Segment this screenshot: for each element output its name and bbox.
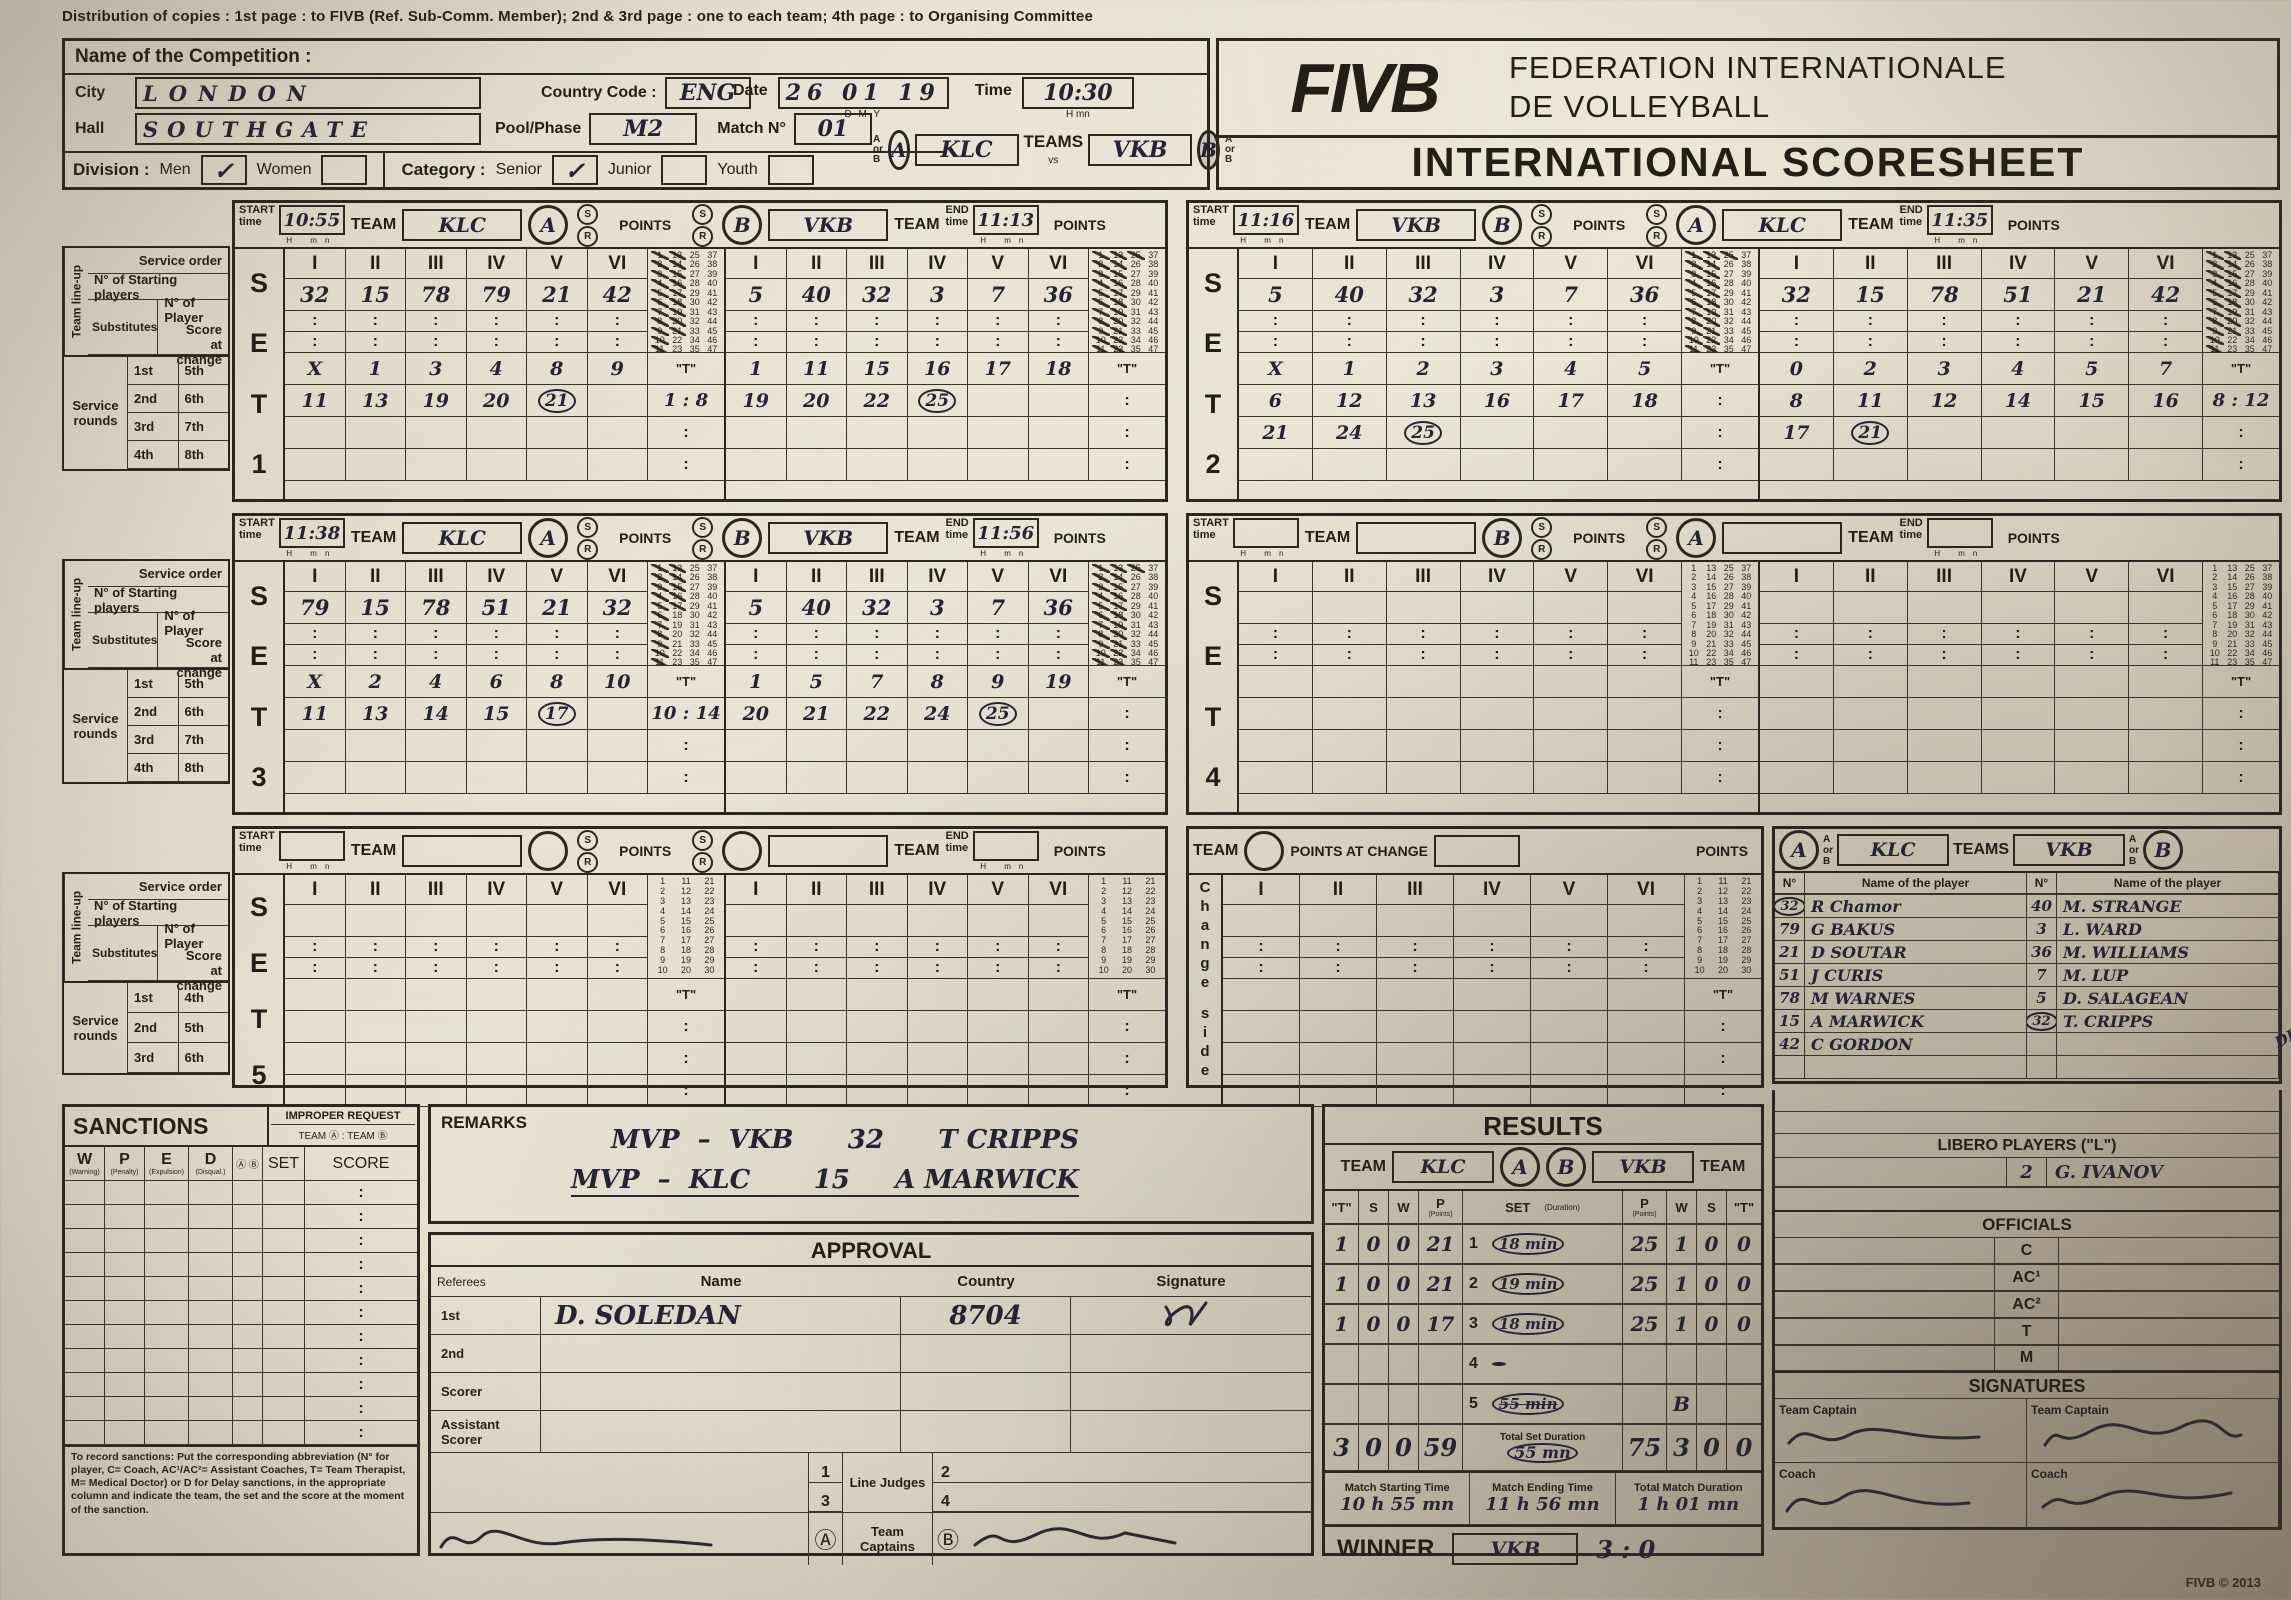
handwritten-score: 11:13 xyxy=(977,210,1034,231)
substitutes-block: SubstitutesN° of PlayerScoreat change xyxy=(88,613,228,668)
service-round-cell xyxy=(1029,449,1090,481)
starting-player-number xyxy=(2055,592,2129,624)
player-name: G BAKUS xyxy=(1805,918,2027,941)
service-round-cell xyxy=(346,417,407,449)
service-round-cell: 25 xyxy=(1387,417,1461,449)
label-spacer xyxy=(62,513,230,559)
time-label: STARTtime xyxy=(239,205,275,228)
service-round-cell xyxy=(1461,666,1535,698)
service-round-cell xyxy=(1608,1011,1685,1043)
starting-player-number: 5 xyxy=(726,592,787,624)
service-round-cell: 25 xyxy=(908,385,969,417)
change-side-body: ChangesideIIIIIIIVVVI1234567891011121314… xyxy=(1189,875,1761,1107)
service-round-cell xyxy=(1313,666,1387,698)
starting-player-number: 36 xyxy=(1029,279,1090,311)
service-order-numeral: V xyxy=(968,249,1029,279)
official-role-label: T xyxy=(1995,1319,2059,1345)
player-number: 36 xyxy=(2027,941,2057,964)
official-row: AC¹ xyxy=(1775,1265,2279,1292)
service-round-cell xyxy=(1313,698,1387,730)
official-row: C xyxy=(1775,1238,2279,1265)
handwritten-score: 21 xyxy=(2077,282,2106,307)
service-order-numeral: V xyxy=(527,249,588,279)
line-judges-row: 13Line Judges24 xyxy=(431,1453,1311,1513)
substitutes-block: SubstitutesN° of PlayerScoreat change xyxy=(88,300,228,355)
time-value-box: 11:13 xyxy=(973,205,1039,235)
service-order-numeral: III xyxy=(847,562,908,592)
handwritten-score: 15 xyxy=(361,282,390,307)
handwritten-score: 59 xyxy=(1424,1433,1457,1462)
starting-player-number xyxy=(787,905,848,937)
service-round-cell xyxy=(346,1011,407,1043)
substitution-cell: : xyxy=(2129,645,2203,666)
service-round-cell xyxy=(588,385,649,417)
handwritten-score: 1 xyxy=(369,358,382,380)
handwritten-score: 11 xyxy=(302,703,328,725)
sanction-cell xyxy=(105,1229,145,1253)
handwritten-score: 21 xyxy=(1262,422,1288,444)
service-round-cell xyxy=(2055,698,2129,730)
change-side-letter: s xyxy=(1201,1005,1209,1022)
service-round-cell xyxy=(285,979,346,1011)
substitution-cell: : xyxy=(406,311,467,332)
substitution-cell: : xyxy=(847,311,908,332)
service-round-cell xyxy=(527,730,588,762)
service-round-cell xyxy=(787,1075,848,1107)
sanction-cell xyxy=(65,1253,105,1277)
substitutes-label: Substitutes xyxy=(88,613,158,667)
distribution-note: Distribution of copies : 1st page : to F… xyxy=(62,8,1762,25)
substitution-cell: : xyxy=(1834,624,1908,645)
substitution-cell: : xyxy=(1313,332,1387,353)
handwritten-score: 11 xyxy=(803,358,829,380)
service-round-cell: 19 xyxy=(726,385,787,417)
handwritten-score: 32 xyxy=(1782,282,1811,307)
captain-a-sig-label: Team Captain xyxy=(1779,1403,1857,1417)
service-round-cell xyxy=(1239,762,1313,794)
approval-row: 1stD. SOLEDAN8704 xyxy=(431,1297,1311,1335)
signature-scribble xyxy=(431,1521,731,1557)
start-time: STARTtimeH mn xyxy=(1193,518,1299,558)
player-number xyxy=(2027,1033,2057,1056)
set-number-column: SET4 xyxy=(1189,562,1239,812)
handwritten-score: 0 xyxy=(1365,1433,1382,1462)
handwritten-score: 8 xyxy=(931,671,944,693)
service-round-cell xyxy=(588,762,649,794)
service-order-numeral: IV xyxy=(467,562,528,592)
service-round-cell xyxy=(787,1011,848,1043)
service-order-numeral: II xyxy=(1834,562,1908,592)
service-order-numeral: V xyxy=(1534,249,1608,279)
service-round-cell: 13 xyxy=(346,385,407,417)
service-round-cell xyxy=(467,417,528,449)
sanction-cell xyxy=(145,1397,189,1421)
team-label: TEAM xyxy=(894,842,939,860)
service-round-cell xyxy=(1760,762,1834,794)
sanction-cell xyxy=(105,1301,145,1325)
round-ordinal: 8th xyxy=(179,754,229,781)
team-name-right xyxy=(1722,522,1842,554)
starting-player-number xyxy=(1387,592,1461,624)
service-rounds-vertical-label: Servicerounds xyxy=(64,670,128,782)
substitution-cell: : xyxy=(787,624,848,645)
starting-player-number xyxy=(1461,592,1535,624)
handwritten-score: B xyxy=(1673,1392,1690,1416)
serve-icon: S xyxy=(692,830,713,851)
service-round-cell: 1 xyxy=(346,353,407,385)
service-order-numeral: VI xyxy=(588,562,649,592)
service-round-cell xyxy=(968,1011,1029,1043)
timeout-cell: "T" xyxy=(1685,979,1761,1011)
handwritten-score: 15 xyxy=(1779,1012,1800,1030)
substitution-cell: : xyxy=(1223,958,1300,979)
service-round-cell xyxy=(1313,730,1387,762)
name-col: Name of the player xyxy=(1805,873,2027,894)
team-label: TEAM xyxy=(351,529,396,547)
player-name: J CURIS xyxy=(1805,964,2027,987)
handwritten-score: 5 xyxy=(810,671,823,693)
substitution-cell: : xyxy=(1377,937,1454,958)
serve-icon: S xyxy=(1646,204,1667,225)
player-name: D SOUTAR xyxy=(1805,941,2027,964)
handwritten-score: 40 xyxy=(1335,282,1364,307)
receive-icon: R xyxy=(1646,226,1667,247)
handwritten-score: 19 xyxy=(1045,671,1071,693)
timeout-cell: 1 : 8 xyxy=(648,385,724,417)
handwritten-score: 0 xyxy=(1395,1433,1412,1462)
substitution-cell: : xyxy=(787,958,848,979)
serve-receive-indicator: SR xyxy=(577,830,598,873)
timeout-cell: : xyxy=(1682,730,1758,762)
service-round-pair: 1st5th xyxy=(128,670,228,698)
time-value-box: 11:56 xyxy=(973,518,1039,548)
sanction-cell: : xyxy=(305,1325,417,1349)
points-number: 35 xyxy=(1127,658,1145,666)
handwritten-score: VKB xyxy=(2045,839,2092,861)
handwritten-score: 0 xyxy=(1705,1312,1719,1336)
substitution-cell: : xyxy=(908,311,969,332)
team-letter-circle: A xyxy=(528,518,568,558)
substitution-cell: : xyxy=(346,332,407,353)
sanction-cell: : xyxy=(305,1205,417,1229)
substitution-cell: : xyxy=(1461,311,1535,332)
sanction-cell xyxy=(145,1349,189,1373)
starting-player-number: 36 xyxy=(1029,592,1090,624)
service-round-pair: 4th8th xyxy=(128,441,228,469)
time-value-box xyxy=(973,831,1039,861)
remarks-line-1: MVP – VKB 32 T CRIPPS xyxy=(611,1125,1301,1155)
points-number: 30 xyxy=(1735,966,1758,976)
service-round-cell xyxy=(1908,449,1982,481)
signature-col: Signature xyxy=(1071,1267,1311,1296)
service-order-numeral: III xyxy=(406,249,467,279)
handwritten-score: 1 : 8 xyxy=(664,390,708,411)
handwritten-score: J CURIS xyxy=(1811,966,1883,985)
service-round-cell: 17 xyxy=(968,353,1029,385)
substitution-cell: : xyxy=(908,624,969,645)
handwritten-score: 3 xyxy=(2036,920,2046,938)
substitution-cell: : xyxy=(467,937,528,958)
start-time: STARTtime11:16H mn xyxy=(1193,205,1299,245)
sanction-cell xyxy=(65,1373,105,1397)
handwritten-score: 1 xyxy=(1335,1272,1349,1296)
set-number: 5 xyxy=(251,1060,266,1091)
service-round-cell xyxy=(588,1043,649,1075)
service-round-cell xyxy=(968,449,1029,481)
service-round-cell xyxy=(2055,730,2129,762)
player-number: 21 xyxy=(1775,941,1805,964)
sanction-cell xyxy=(189,1205,233,1229)
sanction-score-header: SCORE xyxy=(305,1147,417,1181)
service-round-cell: 24 xyxy=(1313,417,1387,449)
set-side: IIIIIIIVVVI12345678910111213141516171819… xyxy=(1239,562,1760,812)
substitution-cell: : xyxy=(787,645,848,666)
round-ordinal: 8th xyxy=(179,441,229,468)
service-round-cell xyxy=(908,417,969,449)
result-cell xyxy=(1623,1345,1667,1384)
service-round-cell xyxy=(1461,417,1535,449)
sanction-cell xyxy=(189,1301,233,1325)
substitution-cell: : xyxy=(908,332,969,353)
service-round-cell xyxy=(1760,449,1834,481)
results-set-row: 10021118 min25100 xyxy=(1325,1225,1761,1265)
receive-icon: R xyxy=(1531,539,1552,560)
service-round-cell xyxy=(1534,666,1608,698)
service-round-cell xyxy=(1760,730,1834,762)
handwritten-score: A MARWICK xyxy=(1811,1012,1924,1031)
substitution-cell: : xyxy=(527,311,588,332)
player-number: 5 xyxy=(2027,987,2057,1010)
official-name-blank xyxy=(2059,1319,2279,1345)
time-units: H mn xyxy=(973,549,1039,558)
service-round-cell xyxy=(1982,666,2056,698)
captain-a-sig: Team Captain xyxy=(1775,1399,2027,1463)
time-value-box xyxy=(1233,518,1299,548)
starting-player-number: 32 xyxy=(1760,279,1834,311)
city-label: City xyxy=(65,84,127,102)
serve-receive-indicator: SR xyxy=(692,204,713,247)
sanction-cell xyxy=(145,1205,189,1229)
substitution-cell: : xyxy=(787,937,848,958)
substitution-cell: : xyxy=(2129,624,2203,645)
handwritten-score: 17 xyxy=(1427,1312,1455,1336)
service-order-label: Service order xyxy=(88,874,228,900)
team-lineup-vertical-label: Team line-up xyxy=(64,874,88,981)
handwritten-score: VKB xyxy=(803,213,853,237)
sanctions-title: SANCTIONS xyxy=(65,1107,267,1145)
service-round-cell xyxy=(285,1011,346,1043)
result-cell xyxy=(1697,1345,1727,1384)
result-cell xyxy=(1667,1345,1697,1384)
handwritten-score: 12 xyxy=(1931,390,1957,412)
points-number: 35 xyxy=(686,345,704,353)
referee-signature xyxy=(1071,1373,1311,1410)
substitution-cell: : xyxy=(1387,332,1461,353)
starting-player-number: 21 xyxy=(527,592,588,624)
round-ordinal: 6th xyxy=(179,698,229,725)
starting-player-number: 51 xyxy=(1982,279,2056,311)
round-ordinal: 5th xyxy=(179,357,229,384)
service-round-cell xyxy=(1531,1011,1608,1043)
team-letter-circle: B xyxy=(1482,205,1522,245)
handwritten-score: 8704 xyxy=(949,1301,1021,1331)
service-round-cell xyxy=(1834,666,1908,698)
substitution-cell: : xyxy=(787,332,848,353)
service-round-cell: 9 xyxy=(588,353,649,385)
sanction-cell xyxy=(105,1325,145,1349)
blank-roster-line xyxy=(1772,1112,2282,1134)
result-cell: B xyxy=(1667,1385,1697,1424)
service-round-cell: 21 xyxy=(1834,417,1908,449)
substitution-cell: : xyxy=(467,332,528,353)
receive-icon: R xyxy=(692,226,713,247)
handwritten-score: 78 xyxy=(421,595,450,620)
handwritten-score: 32 xyxy=(603,595,632,620)
handwritten-score: X xyxy=(307,358,322,380)
timeout-cell: : xyxy=(2203,417,2279,449)
team-label: TEAM xyxy=(351,216,396,234)
round-ordinal: 7th xyxy=(179,726,229,753)
starting-player-number: 78 xyxy=(1908,279,1982,311)
country-code-label: Country Code : xyxy=(541,84,657,102)
handwritten-score: L. WARD xyxy=(2063,920,2142,939)
official-blank xyxy=(1775,1346,1995,1371)
starting-player-number: 3 xyxy=(908,279,969,311)
starting-player-number: 78 xyxy=(406,592,467,624)
service-round-cell xyxy=(1608,449,1682,481)
roster-col-headers: N°Name of the playerN°Name of the player xyxy=(1775,873,2279,895)
team-a-field: KLC xyxy=(915,134,1019,166)
approval-row: 2nd xyxy=(431,1335,1311,1373)
service-order-numeral: III xyxy=(1908,562,1982,592)
points-number: 35 xyxy=(1720,658,1738,666)
service-round-cell xyxy=(1387,698,1461,730)
results-set-row: 10017318 min25100 xyxy=(1325,1305,1761,1345)
signatures-title: SIGNATURES xyxy=(1775,1373,2279,1399)
substitution-cell: : xyxy=(285,624,346,645)
service-round-cell: 1 xyxy=(726,353,787,385)
sanction-cell xyxy=(145,1277,189,1301)
set-header: STARTtime11:16H mnTEAMVKBBSRPOINTSSRAKLC… xyxy=(1189,203,2279,249)
change-side-letter: g xyxy=(1200,955,1209,972)
service-order-numeral: V xyxy=(1534,562,1608,592)
serve-icon: S xyxy=(1531,517,1552,538)
service-round-cell xyxy=(1300,979,1377,1011)
handwritten-score: 51 xyxy=(482,595,511,620)
handwritten-score: 17 xyxy=(985,358,1011,380)
handwritten-score: 13 xyxy=(362,703,388,725)
signature-scribble xyxy=(1779,1417,1999,1457)
points-number: 23 xyxy=(669,658,687,666)
substitution-cell: : xyxy=(588,645,649,666)
service-round-cell xyxy=(527,449,588,481)
service-round-pair: 1st5th xyxy=(128,357,228,385)
sanction-cell xyxy=(233,1181,263,1205)
name-col: Name of the player xyxy=(2057,873,2279,894)
serve-receive-indicator: SR xyxy=(1646,517,1667,560)
result-cell xyxy=(1359,1345,1389,1384)
substitution-cell: : xyxy=(726,645,787,666)
handwritten-score-circled: 17 xyxy=(538,702,576,726)
handwritten-score: 0 xyxy=(1367,1312,1381,1336)
service-round-cell xyxy=(1029,1075,1090,1107)
results-set-row: 10021219 min25100 xyxy=(1325,1265,1761,1305)
substitutes-label: Substitutes xyxy=(88,300,158,354)
starting-player-number: 32 xyxy=(1387,279,1461,311)
handwritten-score: 7 xyxy=(990,282,1005,307)
substitution-cell: : xyxy=(1982,645,2056,666)
handwritten-score: R Chamor xyxy=(1811,897,1901,916)
substitution-cell: : xyxy=(1223,937,1300,958)
player-name: D. SALAGEAN xyxy=(2057,987,2279,1010)
service-round-cell xyxy=(1029,417,1090,449)
points-column: 1234567891011121314151617181920212223242… xyxy=(648,562,724,665)
substitution-cell: : xyxy=(467,311,528,332)
handwritten-score-circled: 19 min xyxy=(1492,1273,1565,1295)
substitution-cell: : xyxy=(847,937,908,958)
sanction-cell xyxy=(145,1301,189,1325)
service-order-numeral: I xyxy=(726,875,787,905)
handwritten-score: 36 xyxy=(1630,282,1659,307)
city-field: LONDON xyxy=(135,77,481,109)
service-round-cell: 12 xyxy=(1908,385,1982,417)
teams-label: TEAMS xyxy=(1953,841,2009,859)
round-ordinal: 4th xyxy=(128,441,179,468)
starting-player-number: 79 xyxy=(285,592,346,624)
service-round-cell xyxy=(847,1043,908,1075)
handwritten-score: 11 h 56 mn xyxy=(1485,1494,1599,1515)
roster-header: AAorBKLCTEAMSVKBAorBB xyxy=(1775,829,2279,873)
player-number: 79 xyxy=(1775,918,1805,941)
handwritten-score-circled xyxy=(1492,1362,1506,1366)
coach-a-sig: Coach xyxy=(1775,1463,2027,1527)
set-word-letter: E xyxy=(250,328,268,359)
handwritten-score: 8 xyxy=(1790,390,1803,412)
timeout-cell: : xyxy=(1682,449,1758,481)
service-round-cell xyxy=(908,730,969,762)
timeout-cell: : xyxy=(1089,449,1165,481)
officials-title: OFFICIALS xyxy=(1775,1212,2279,1238)
handwritten-score: 16 xyxy=(924,358,950,380)
starting-player-number: 79 xyxy=(467,279,528,311)
service-rounds-vertical-label: Servicerounds xyxy=(64,983,128,1073)
service-round-cell: 16 xyxy=(908,353,969,385)
substitution-cell: : xyxy=(1760,332,1834,353)
handwritten-score: 19 xyxy=(743,390,769,412)
set-body: SET2IIIIIIIVVVI1234567891011121314151617… xyxy=(1189,249,2279,499)
service-round-cell: 22 xyxy=(847,385,908,417)
handwritten-score: 36 xyxy=(2031,943,2052,961)
points-header-right: POINTS xyxy=(1045,217,1115,233)
handwritten-score: 4 xyxy=(2011,358,2024,380)
service-round-cell: 17 xyxy=(1534,385,1608,417)
fivb-header: FIVB FEDERATION INTERNATIONALE DE VOLLEY… xyxy=(1216,38,2280,190)
handwritten-score: 15 xyxy=(1856,282,1885,307)
result-cell xyxy=(1325,1345,1359,1384)
starting-player-number: 40 xyxy=(787,592,848,624)
round-ordinal: 4th xyxy=(128,754,179,781)
substitution-cell: : xyxy=(1387,645,1461,666)
handwritten-score: 0 xyxy=(1397,1312,1411,1336)
team-label: TEAM xyxy=(1848,216,1893,234)
sanction-cell xyxy=(233,1349,263,1373)
substitution-cell: : xyxy=(908,958,969,979)
sanction-cell xyxy=(263,1253,305,1277)
handwritten-score: 0 xyxy=(1736,1433,1753,1462)
starting-player-number: 32 xyxy=(588,592,649,624)
handwritten-score: 3 xyxy=(429,358,442,380)
starting-player-number: 7 xyxy=(968,279,1029,311)
